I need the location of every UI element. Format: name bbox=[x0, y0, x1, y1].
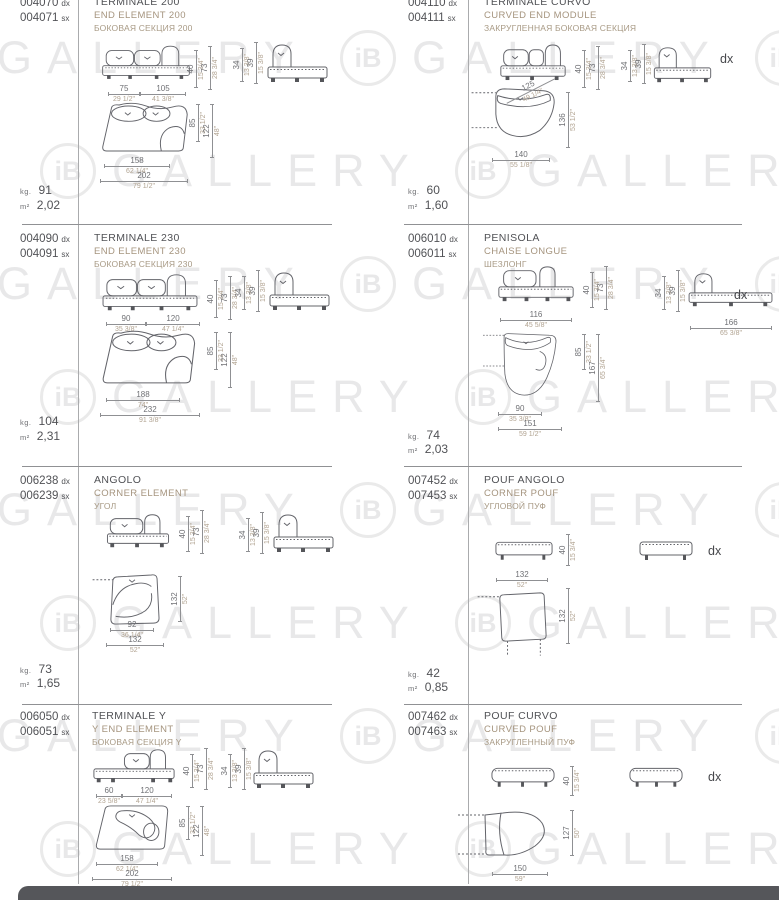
dimension: 7328 3/4" bbox=[196, 748, 216, 790]
product-code: 004091sx bbox=[20, 247, 70, 262]
area-value: m²1,65 bbox=[20, 676, 60, 690]
product-code: 004110dx bbox=[408, 0, 457, 11]
product-cell-angolo: 006238dx 006239sx ANGOLO CORNER ELEMENT … bbox=[0, 466, 390, 704]
m2-number: 1,65 bbox=[37, 676, 60, 690]
m2-number: 0,85 bbox=[425, 680, 448, 694]
weight-value: kg.42 bbox=[408, 666, 440, 680]
product-cell-penisola: 006010dx 006011sx PENISOLA CHAISE LONGUE… bbox=[390, 224, 779, 466]
front-view-drawing bbox=[100, 270, 200, 316]
dim-in: 15 3/8" bbox=[263, 512, 272, 554]
weight-value: kg.73 bbox=[20, 662, 52, 676]
dim-cm: 158 bbox=[96, 854, 158, 865]
side-view-drawing bbox=[686, 270, 776, 310]
dim-cm: 40 bbox=[582, 272, 593, 308]
m2-number: 2,31 bbox=[37, 429, 60, 443]
dim-in: 28 3/4" bbox=[599, 46, 608, 90]
dimension: 20279 1/2" bbox=[100, 171, 188, 191]
title-english: CHAISE LONGUE bbox=[484, 245, 567, 258]
product-code: 006239sx bbox=[20, 489, 70, 504]
title-italian: POUF CURVO bbox=[484, 710, 575, 723]
kg-label: kg. bbox=[20, 666, 32, 675]
top-view-drawing bbox=[100, 330, 200, 386]
title-italian: POUF ANGOLO bbox=[484, 474, 565, 487]
dim-in: 15 3/8" bbox=[679, 270, 688, 312]
title-english: CORNER ELEMENT bbox=[94, 487, 188, 500]
product-code: 006051sx bbox=[20, 725, 70, 740]
dim-cm: 73 bbox=[200, 46, 211, 90]
product-codes: 006010dx 006011sx bbox=[408, 232, 458, 262]
dim-cm: 120 bbox=[122, 786, 172, 797]
dimension: 3915 3/8" bbox=[234, 748, 254, 790]
kg-number: 74 bbox=[427, 428, 440, 442]
dim-cm: 40 bbox=[182, 754, 193, 788]
dim-cm: 40 bbox=[206, 280, 217, 318]
dim-in: 65 3/8" bbox=[690, 329, 772, 338]
title-italian: TERMINALE 230 bbox=[94, 232, 193, 245]
dim-cm: 90 bbox=[498, 404, 542, 415]
product-code: 006011sx bbox=[408, 247, 458, 262]
dim-cm: 34 bbox=[232, 48, 243, 82]
dim-in: 48" bbox=[213, 104, 222, 158]
dim-in: 52" bbox=[496, 581, 548, 590]
weight-value: kg.91 bbox=[20, 183, 52, 197]
top-view-drawing bbox=[94, 804, 172, 852]
dim-cm: 140 bbox=[492, 150, 550, 161]
product-cell-terminale-y: 006050dx 006051sx TERMINALE Y Y END ELEM… bbox=[0, 704, 390, 899]
area-value: m²2,31 bbox=[20, 429, 60, 443]
top-view-drawing bbox=[492, 332, 568, 400]
m2-label: m² bbox=[408, 446, 418, 455]
m2-label: m² bbox=[20, 202, 30, 211]
dim-cm: 73 bbox=[192, 510, 203, 554]
title-italian: TERMINALE 200 bbox=[94, 0, 193, 9]
dim-in: 28 3/4" bbox=[207, 748, 216, 790]
title-english: END ELEMENT 230 bbox=[94, 245, 193, 258]
dim-cm: 132 bbox=[496, 570, 548, 581]
dim-in: 15 3/8" bbox=[257, 42, 266, 84]
kg-number: 91 bbox=[39, 183, 52, 197]
product-cell-pouf-angolo: 007452dx 007453sx POUF ANGOLO CORNER POU… bbox=[390, 466, 779, 704]
front-view-drawing bbox=[494, 540, 554, 564]
dimension: 12248" bbox=[220, 332, 240, 388]
product-cell-pouf-curvo: 007462dx 007463sx POUF CURVO CURVED POUF… bbox=[390, 704, 779, 899]
product-codes: 006238dx 006239sx bbox=[20, 474, 70, 504]
dim-cm: 34 bbox=[654, 276, 665, 310]
dimension: 3915 3/8" bbox=[246, 42, 266, 84]
area-value: m²2,03 bbox=[408, 442, 448, 456]
m2-number: 2,02 bbox=[37, 198, 60, 212]
dim-cm: 34 bbox=[238, 518, 249, 552]
m2-label: m² bbox=[20, 433, 30, 442]
product-title: POUF CURVO CURVED POUF ЗАКРУГЛЕННЫЙ ПУФ bbox=[484, 710, 575, 749]
dimension: 3915 3/8" bbox=[634, 44, 654, 84]
dimension: 16665 3/8" bbox=[690, 318, 772, 338]
product-code: 007452dx bbox=[408, 474, 458, 489]
product-code: 004111sx bbox=[408, 11, 457, 26]
kg-number: 42 bbox=[427, 666, 440, 680]
dim-in: 15 3/4" bbox=[573, 766, 582, 796]
title-italian: TERMINALE CURVO bbox=[484, 0, 636, 9]
dim-cm: 85 bbox=[574, 334, 585, 370]
weight-value: kg.74 bbox=[408, 428, 440, 442]
area-value: m²2,02 bbox=[20, 198, 60, 212]
dim-cm: 40 bbox=[178, 516, 189, 552]
kg-label: kg. bbox=[20, 418, 32, 427]
title-italian: TERMINALE Y bbox=[92, 710, 182, 723]
area-value: m²1,60 bbox=[408, 198, 448, 212]
side-view-drawing bbox=[252, 746, 316, 792]
dim-cm: 60 bbox=[96, 786, 122, 797]
m2-label: m² bbox=[408, 202, 418, 211]
title-english: Y END ELEMENT bbox=[92, 723, 182, 736]
kg-label: kg. bbox=[408, 670, 420, 679]
m2-label: m² bbox=[408, 684, 418, 693]
dim-in: 28 3/4" bbox=[607, 266, 616, 310]
dim-cm: 116 bbox=[500, 310, 572, 321]
product-codes: 004070dx 004071sx bbox=[20, 0, 70, 26]
dim-cm: 105 bbox=[140, 84, 186, 95]
product-title: ANGOLO CORNER ELEMENT УГОЛ bbox=[94, 474, 188, 513]
title-english: CURVED POUF bbox=[484, 723, 575, 736]
dim-cm: 120 bbox=[146, 314, 200, 325]
weight-value: kg.104 bbox=[20, 414, 59, 428]
dim-cm: 39 bbox=[246, 42, 257, 84]
product-codes: 006050dx 006051sx bbox=[20, 710, 70, 740]
dim-cm: 166 bbox=[690, 318, 772, 329]
bottom-panel-edge bbox=[18, 886, 779, 900]
dim-cm: 73 bbox=[220, 276, 231, 320]
front-view-drawing bbox=[490, 766, 556, 792]
dimension: 12248" bbox=[192, 806, 212, 856]
front-view-drawing bbox=[104, 510, 172, 552]
dimension: 13252" bbox=[170, 576, 190, 622]
product-title: TERMINALE 230 END ELEMENT 230 БОКОВАЯ СЕ… bbox=[94, 232, 193, 271]
m2-number: 2,03 bbox=[425, 442, 448, 456]
dim-cm: 92 bbox=[110, 620, 154, 631]
product-codes: 007452dx 007453sx bbox=[408, 474, 458, 504]
title-russian: ЗАКРУГЛЕННАЯ БОКОВАЯ СЕКЦИЯ bbox=[484, 22, 636, 35]
dim-cm: 158 bbox=[104, 156, 170, 167]
dim-in: 79 1/2" bbox=[100, 182, 188, 191]
kg-label: kg. bbox=[408, 432, 420, 441]
dim-cm: 39 bbox=[234, 748, 245, 790]
dimension: 4015 3/4" bbox=[558, 534, 578, 566]
dx-orientation-label: dx bbox=[720, 52, 733, 66]
dimension: 23291 3/8" bbox=[100, 405, 200, 425]
dim-cm: 85 bbox=[178, 806, 189, 840]
dimension: 3915 3/8" bbox=[668, 270, 688, 312]
dim-in: 53 1/2" bbox=[569, 92, 578, 148]
top-view-drawing bbox=[474, 808, 552, 860]
dim-in: 52" bbox=[106, 646, 164, 655]
dim-in: 65 3/4" bbox=[599, 334, 608, 402]
dim-cm: 73 bbox=[588, 46, 599, 90]
dim-cm: 122 bbox=[220, 332, 231, 388]
dim-in: 91 3/8" bbox=[100, 416, 200, 425]
dim-in: 28 3/4" bbox=[203, 510, 212, 554]
dim-in: 48" bbox=[231, 332, 240, 388]
product-cell-terminale-230: 004090dx 004091sx TERMINALE 230 END ELEM… bbox=[0, 224, 390, 466]
dim-cm: 39 bbox=[248, 270, 259, 312]
dimension: 15159 1/2" bbox=[498, 419, 562, 439]
dim-cm: 127 bbox=[562, 810, 573, 856]
catalog-page: 004070dx 004071sx TERMINALE 200 END ELEM… bbox=[0, 0, 779, 899]
dx-orientation-label: dx bbox=[708, 544, 721, 558]
product-code: 006010dx bbox=[408, 232, 458, 247]
dim-cm: 150 bbox=[492, 864, 548, 875]
dim-cm: 39 bbox=[634, 44, 645, 84]
dim-cm: 136 bbox=[558, 92, 569, 148]
dim-cm: 232 bbox=[100, 405, 200, 416]
title-russian: БОКОВАЯ СЕКЦИЯ 200 bbox=[94, 22, 193, 35]
dim-in: 55 1/8" bbox=[492, 161, 550, 170]
product-cell-terminale-200: 004070dx 004071sx TERMINALE 200 END ELEM… bbox=[0, 0, 390, 224]
dim-in: 48" bbox=[203, 806, 212, 856]
dimension: 16765 3/4" bbox=[588, 334, 608, 402]
product-code: 006050dx bbox=[20, 710, 70, 725]
product-code: 007462dx bbox=[408, 710, 458, 725]
dim-in: 15 3/8" bbox=[259, 270, 268, 312]
kg-number: 73 bbox=[39, 662, 52, 676]
title-english: END ELEMENT 200 bbox=[94, 9, 193, 22]
product-code: 007453sx bbox=[408, 489, 458, 504]
dimension: 14055 1/8" bbox=[492, 150, 550, 170]
dim-in: 15 3/8" bbox=[645, 44, 654, 84]
dim-cm: 40 bbox=[186, 50, 197, 88]
side-view-drawing bbox=[628, 766, 684, 792]
dim-cm: 202 bbox=[92, 869, 172, 880]
product-title: TERMINALE 200 END ELEMENT 200 БОКОВАЯ СЕ… bbox=[94, 0, 193, 35]
side-view-drawing bbox=[272, 510, 336, 556]
product-codes: 004090dx 004091sx bbox=[20, 232, 70, 262]
kg-label: kg. bbox=[408, 187, 420, 196]
dim-cm: 40 bbox=[574, 50, 585, 88]
dimension: 13653 1/2" bbox=[558, 92, 578, 148]
product-code: 004070dx bbox=[20, 0, 70, 11]
dim-cm: 34 bbox=[234, 276, 245, 310]
title-english: CORNER POUF bbox=[484, 487, 565, 500]
top-view-drawing bbox=[100, 102, 192, 154]
product-code: 004071sx bbox=[20, 11, 70, 26]
dim-cm: 151 bbox=[498, 419, 562, 430]
dim-in: 15 3/8" bbox=[245, 748, 254, 790]
side-view-drawing bbox=[266, 40, 330, 86]
dimension: 13252" bbox=[496, 570, 548, 590]
dimension: 12750" bbox=[562, 810, 582, 856]
product-title: TERMINALE Y Y END ELEMENT БОКОВАЯ СЕКЦИЯ… bbox=[92, 710, 182, 749]
dx-orientation-label: dx bbox=[734, 288, 747, 302]
area-value: m²0,85 bbox=[408, 680, 448, 694]
dim-cm: 34 bbox=[220, 754, 231, 788]
front-view-drawing bbox=[496, 262, 576, 306]
dimension: 15059" bbox=[492, 864, 548, 884]
side-view-drawing bbox=[268, 268, 332, 314]
dim-cm: 90 bbox=[106, 314, 146, 325]
dimension: 7328 3/4" bbox=[192, 510, 212, 554]
product-code: 007463sx bbox=[408, 725, 458, 740]
product-title: POUF ANGOLO CORNER POUF УГЛОВОЙ ПУФ bbox=[484, 474, 565, 513]
dimension: 12248" bbox=[202, 104, 222, 158]
dim-in: 45 5/8" bbox=[500, 321, 572, 330]
dimension: 13252" bbox=[558, 588, 578, 644]
dim-in: 59" bbox=[492, 875, 548, 884]
dim-cm: 188 bbox=[106, 390, 180, 401]
title-russian: ЗАКРУГЛЕННЫЙ ПУФ bbox=[484, 736, 575, 749]
dim-cm: 202 bbox=[100, 171, 188, 182]
product-codes: 007462dx 007463sx bbox=[408, 710, 458, 740]
dimension: 3915 3/8" bbox=[248, 270, 268, 312]
dim-cm: 39 bbox=[668, 270, 679, 312]
dim-in: 52" bbox=[569, 588, 578, 644]
front-view-drawing bbox=[100, 40, 192, 86]
dim-in: 15 3/4" bbox=[569, 534, 578, 566]
dim-cm: 34 bbox=[620, 50, 631, 82]
dim-cm: 132 bbox=[106, 635, 164, 646]
top-view-drawing bbox=[106, 574, 162, 626]
dim-in: 50" bbox=[573, 810, 582, 856]
dim-cm: 85 bbox=[206, 332, 217, 370]
front-view-drawing bbox=[92, 746, 176, 788]
dim-cm: 39 bbox=[252, 512, 263, 554]
dimension: 13252" bbox=[106, 635, 164, 655]
m2-number: 1,60 bbox=[425, 198, 448, 212]
dim-cm: 75 bbox=[108, 84, 140, 95]
weight-value: kg.60 bbox=[408, 183, 440, 197]
dim-cm: 167 bbox=[588, 334, 599, 402]
dimension: 7328 3/4" bbox=[588, 46, 608, 90]
dimension: 7328 3/4" bbox=[200, 46, 220, 90]
product-code: 004090dx bbox=[20, 232, 70, 247]
side-view-drawing bbox=[638, 540, 694, 564]
dim-cm: 132 bbox=[170, 576, 181, 622]
dim-in: 59 1/2" bbox=[498, 430, 562, 439]
dim-cm: 85 bbox=[188, 104, 199, 142]
dimension: 6023 5/8" bbox=[96, 786, 122, 806]
dim-cm: 40 bbox=[562, 766, 573, 796]
dimension: 10541 3/8" bbox=[140, 84, 186, 104]
dx-orientation-label: dx bbox=[708, 770, 721, 784]
dim-in: 52" bbox=[181, 576, 190, 622]
dim-cm: 73 bbox=[196, 748, 207, 790]
dimension: 7529 1/2" bbox=[108, 84, 140, 104]
title-russian: УГЛОВОЙ ПУФ bbox=[484, 500, 565, 513]
title-italian: PENISOLA bbox=[484, 232, 567, 245]
kg-label: kg. bbox=[20, 187, 32, 196]
title-english: CURVED END MODULE bbox=[484, 9, 636, 22]
kg-number: 104 bbox=[39, 414, 59, 428]
dimension: 12047 1/4" bbox=[122, 786, 172, 806]
dim-cm: 132 bbox=[558, 588, 569, 644]
side-view-drawing bbox=[652, 44, 714, 86]
product-title: TERMINALE CURVO CURVED END MODULE ЗАКРУГ… bbox=[484, 0, 636, 35]
dimension: 3915 3/8" bbox=[252, 512, 272, 554]
dim-in: 28 3/4" bbox=[211, 46, 220, 90]
dimension: 7328 3/4" bbox=[596, 266, 616, 310]
product-codes: 004110dx 004111sx bbox=[408, 0, 457, 26]
dim-cm: 40 bbox=[558, 534, 569, 566]
dimension: 4015 3/4" bbox=[562, 766, 582, 796]
kg-number: 60 bbox=[427, 183, 440, 197]
dim-cm: 122 bbox=[192, 806, 203, 856]
dim-cm: 73 bbox=[596, 266, 607, 310]
dimension: 11645 5/8" bbox=[500, 310, 572, 330]
dim-cm: 122 bbox=[202, 104, 213, 158]
title-italian: ANGOLO bbox=[94, 474, 188, 487]
top-view-drawing bbox=[494, 590, 550, 644]
product-code: 006238dx bbox=[20, 474, 70, 489]
product-cell-terminale-curvo: 004110dx 004111sx TERMINALE CURVO CURVED… bbox=[390, 0, 779, 224]
m2-label: m² bbox=[20, 680, 30, 689]
